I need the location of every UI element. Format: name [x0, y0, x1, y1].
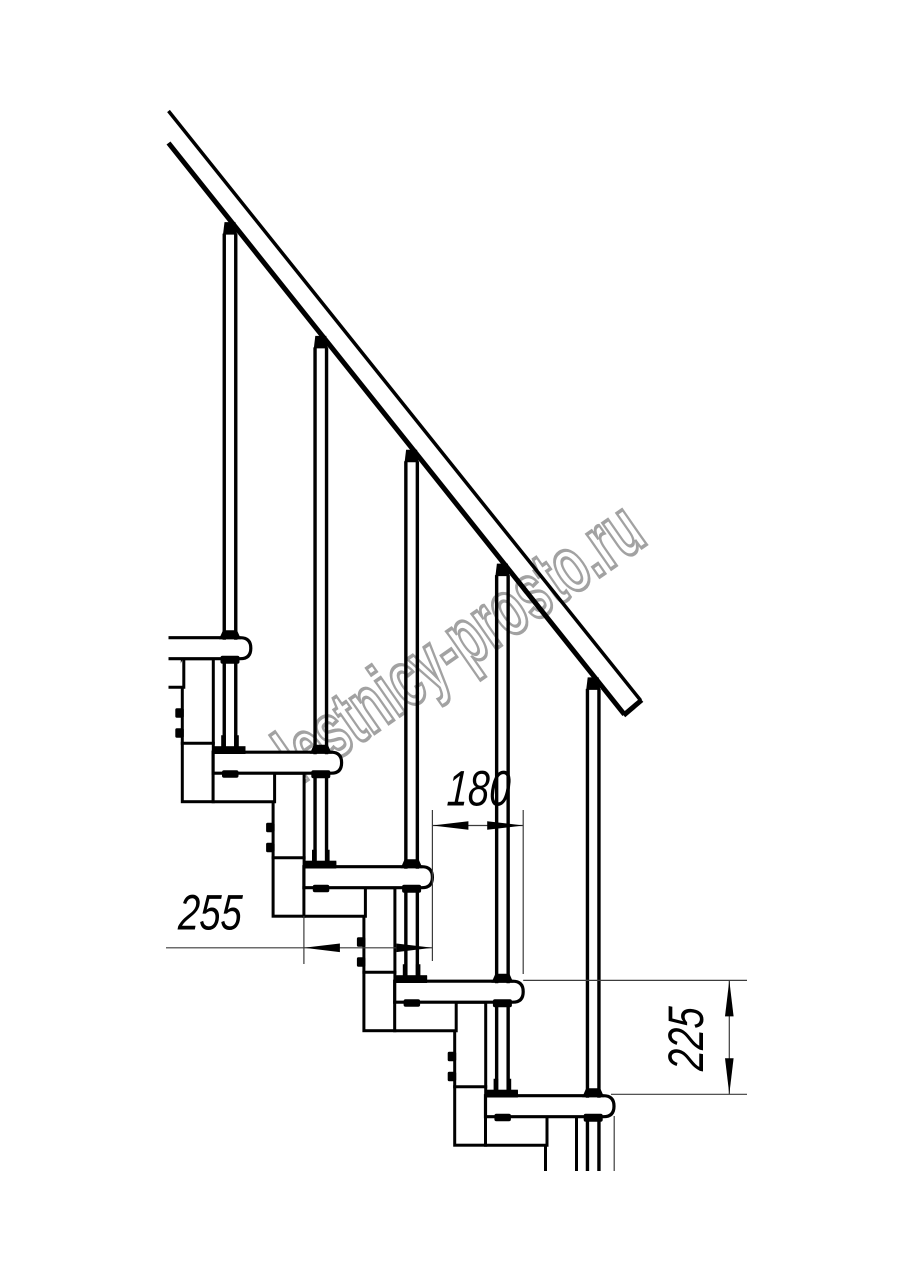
svg-text:225: 225	[659, 1005, 714, 1072]
svg-text:180: 180	[446, 762, 513, 817]
svg-text:255: 255	[176, 886, 243, 941]
